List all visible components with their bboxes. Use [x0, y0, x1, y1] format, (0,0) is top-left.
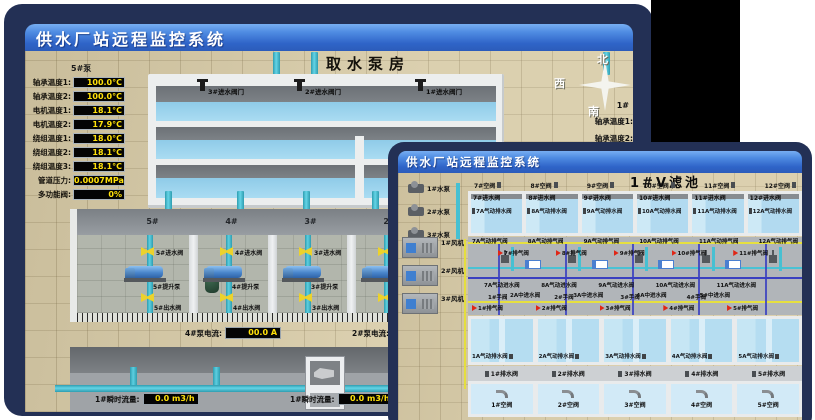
pipe-elbow-icon: [762, 390, 774, 398]
tank-divider: [355, 136, 364, 200]
air-release-valve-label[interactable]: 5#排气阀: [727, 304, 758, 312]
front-window-titlebar[interactable]: 供水厂站远程监控系统: [398, 151, 802, 173]
drain-valve[interactable]: 5#排水阀: [735, 366, 802, 381]
column: [189, 235, 198, 313]
valve-icon: [200, 79, 205, 91]
valve-deck: 7A气动排气阀8A气动排气阀9A气动排气阀10A气动排气阀11A气动排气阀12A…: [468, 237, 802, 315]
inlet-valve-label: 9A气动进水阀: [598, 281, 634, 289]
readout-label: 4#泵电流:: [185, 328, 222, 339]
blower-label: 1#风机: [441, 237, 464, 247]
blower-icon: [402, 265, 438, 286]
filter-pool-scene: 1#V滤池 1#水泵 2#水泵 3#水泵: [398, 173, 802, 420]
filter-cell[interactable]: 4A气动排水阀: [671, 319, 733, 362]
readout-value: 18.1°C: [73, 147, 125, 158]
pump-label: 3#提升泵: [311, 282, 338, 291]
pump1-header: 1#: [577, 101, 633, 110]
blower-label: 3#风机: [441, 293, 464, 303]
pipe: [213, 367, 220, 387]
air-valve[interactable]: 7#空阀: [474, 179, 501, 191]
exhaust-valve-label: 10A气动排气阀: [639, 237, 678, 245]
collection-channel: 5#空阀: [737, 384, 799, 414]
blower-label: 2#风机: [441, 265, 464, 275]
inlet-valve-label: 7A气动进水阀: [484, 281, 520, 289]
filter-cell[interactable]: 3A气动排水阀: [604, 319, 666, 362]
outlet-valve-label: 5#出水阀: [154, 303, 181, 312]
tank-icon: [592, 260, 608, 269]
valve-icon: [297, 79, 302, 91]
air-valve-label: 1#空阀: [491, 400, 512, 409]
outlet-valve-label: 4#出水阀: [233, 303, 260, 312]
readout-label: 管道压力:: [25, 175, 71, 186]
blower[interactable]: 1#风机: [402, 237, 464, 258]
readout-label: 电机温度2:: [25, 119, 71, 130]
drain-valve-label: 5A气动排水阀: [738, 352, 779, 360]
pump-bay: 4#进水阀 4#提升泵 4#出水阀: [198, 235, 264, 313]
readout-row: 多功能阀: 0%: [25, 189, 127, 200]
valve-label: 2#进水阀门: [305, 86, 341, 96]
pump-label: 2#水泵: [427, 206, 450, 216]
drain-valve-label: 3A气动排水阀: [605, 352, 646, 360]
readout-label: 绕组温度2:: [25, 147, 71, 158]
inlet-valve-label: 5#进水阀: [156, 248, 183, 257]
collection-channel: 3#空阀: [604, 384, 666, 414]
inlet-valve-label: 10A气动进水阀: [656, 281, 695, 289]
pipe-elbow-icon: [696, 390, 708, 398]
pump1-readout-panel: 1# 轴承温度1:轴承温度2:: [577, 101, 633, 144]
exhaust-valve-label: 9A气动排气阀: [584, 237, 620, 245]
air-valve[interactable]: 9#空阀: [587, 179, 614, 191]
flow-readout: 1#瞬时流量: 0.0 m3/h: [290, 393, 394, 405]
drain-valve-label: 9A气动排水阀: [583, 207, 623, 215]
hand-valve-label: 2#手阀: [554, 293, 573, 301]
intake-valve[interactable]: 3#进水阀门: [200, 79, 244, 96]
readout-label: 轴承温度1:: [577, 116, 633, 127]
readout-value: 0%: [73, 189, 125, 200]
air-valve-label: 3#空阀: [624, 400, 645, 409]
valve-label: 3#进水阀门: [208, 86, 244, 96]
filter-cell[interactable]: 10#进水阀 10A气动排水阀: [637, 194, 688, 233]
air-pipe: [464, 239, 466, 389]
readout-value: 18.1°C: [73, 105, 125, 116]
tank-wall: [156, 127, 496, 140]
intake-valve[interactable]: 1#进水阀门: [418, 79, 462, 96]
air-valve-label: 4#空阀: [691, 400, 712, 409]
bay-number: 3#: [271, 209, 350, 235]
air-valve[interactable]: 12#空阀: [765, 179, 796, 191]
blower-icon: [402, 237, 438, 258]
air-release-valve-label[interactable]: 4#排气阀: [663, 304, 694, 312]
collection-channel: 4#空阀: [671, 384, 733, 414]
blower[interactable]: 2#风机: [402, 265, 464, 286]
hand-valve-label: 4#手阀: [687, 293, 706, 301]
pipe: [468, 267, 802, 269]
pump-icon[interactable]: [285, 266, 321, 278]
readout-row: 管道压力: 0.0007MPa: [25, 175, 127, 186]
column: [347, 235, 356, 313]
filter-cell[interactable]: 12#进水阀 12A气动排水阀: [748, 194, 799, 233]
readout-row: 绕组温度1: 18.0°C: [25, 133, 127, 144]
readout-value: 17.9°C: [73, 119, 125, 130]
drain-valve-label: 4A气动排水阀: [672, 352, 713, 360]
valve-icon: [418, 79, 423, 91]
exhaust-valve-label: 12A气动排气阀: [759, 237, 798, 245]
readout-value: 18.0°C: [73, 133, 125, 144]
bay-number: 4#: [192, 209, 271, 235]
hand-valve-label: 3#手阀: [620, 293, 639, 301]
filter-cell[interactable]: 1A气动排水阀: [471, 319, 533, 362]
air-release-valve-label[interactable]: 10#排气阀: [672, 249, 707, 257]
collection-channel: 1#空阀: [471, 384, 533, 414]
readout-row: 轴承温度1: 100.0°C: [25, 77, 127, 88]
front-window-title: 供水厂站远程监控系统: [398, 154, 541, 170]
valve-label: 1#进水阀门: [426, 86, 462, 96]
inlet-valve-label: 3#进水阀: [314, 248, 341, 257]
pump-icon: [408, 207, 424, 216]
inlet-valve-label: 12#进水阀: [750, 194, 781, 202]
readout-value: 100.0°C: [73, 91, 125, 102]
air-valve[interactable]: 11#空阀: [704, 179, 735, 191]
drain-valve[interactable]: 4#排水阀: [668, 366, 735, 381]
water-pump[interactable]: 2#水泵: [408, 206, 450, 216]
air-valve-label: 2#空阀: [558, 400, 579, 409]
readout-label: 1#瞬时流量:: [290, 394, 335, 405]
drain-valve-label: 12A气动排水阀: [749, 207, 792, 215]
air-release-valve-label[interactable]: 1#排气阀: [472, 304, 503, 312]
air-valve[interactable]: 10#空阀: [643, 179, 674, 191]
inlet-valve-label: 8#进水阀: [528, 194, 555, 202]
inlet-valve-label: 8A气动进水阀: [541, 281, 577, 289]
pipe: [456, 183, 460, 239]
filter-grid: 7#空阀8#空阀9#空阀10#空阀11#空阀12#空阀 7#进水阀 7A气动排水…: [468, 179, 802, 420]
pump5-readout-panel: 5#泵 轴承温度1: 100.0°C 轴承温度2: 100.0°C: [25, 63, 127, 200]
background-panel: [651, 0, 740, 143]
valve-photo: [310, 361, 340, 385]
pipe: [130, 367, 137, 387]
pump-current-readout: 4#泵电流: 00.0 A: [185, 327, 281, 339]
pump-bay: 5#进水阀 5#提升泵 5#出水阀: [119, 235, 185, 313]
inlet-valve-label: 11#进水阀: [694, 194, 725, 202]
tank-wall: 3#进水阀门 2#进水阀门 1#进水阀门: [156, 86, 496, 102]
exhaust-valve-label: 7A气动排气阀: [472, 237, 508, 245]
readout-value: 0.0007MPa: [73, 175, 125, 186]
readout-value: 0.0 m3/h: [143, 393, 199, 405]
back-window-title: 供水厂站远程监控系统: [25, 26, 226, 50]
readout-label: 轴承温度2:: [25, 91, 71, 102]
tank-icon: [525, 260, 541, 269]
pump-icon[interactable]: [127, 266, 163, 278]
inlet-valve-label: 11A气动进水阀: [717, 281, 756, 289]
readout-label: 1#瞬时流量:: [95, 394, 140, 405]
readout-label: 轴承温度1:: [25, 77, 71, 88]
air-release-valve-label[interactable]: 9#排气阀: [614, 249, 645, 257]
hand-valve-label: 1#手阀: [488, 293, 507, 301]
pipe: [311, 52, 318, 75]
drain-valve-label: 11A气动排水阀: [693, 207, 736, 215]
air-release-valve-label[interactable]: 3#排气阀: [600, 304, 631, 312]
air-release-valve-label[interactable]: 11#排气阀: [733, 249, 768, 257]
inlet-valve-label: 9#进水阀: [584, 194, 611, 202]
pump-icon[interactable]: [206, 266, 242, 278]
readout-value: 00.0 A: [225, 327, 281, 339]
exhaust-valve-label: 8A气动排气阀: [528, 237, 564, 245]
pipe: [273, 52, 280, 75]
readout-row: 电机温度2: 17.9°C: [25, 119, 127, 130]
air-release-valve-label[interactable]: 7#排气阀: [498, 249, 529, 257]
filter-cell[interactable]: 9#进水阀 9A气动排水阀: [582, 194, 633, 233]
pipe-elbow-icon: [562, 390, 574, 398]
pump-label: 5#提升泵: [153, 282, 180, 291]
pipe-elbow-icon: [496, 390, 508, 398]
blower[interactable]: 3#风机: [402, 293, 464, 314]
readout-value: 100.0°C: [73, 77, 125, 88]
flow-readout: 1#瞬时流量: 0.0 m3/h: [95, 393, 199, 405]
readout-label: 绕组温度3:: [25, 161, 71, 172]
pipe: [468, 277, 802, 279]
drain-valve-label: 8A气动排水阀: [527, 207, 567, 215]
pump-label: 4#提升泵: [232, 282, 259, 291]
tank-icon: [658, 260, 674, 269]
drain-valve-label: 10A气动排水阀: [638, 207, 681, 215]
drain-valve[interactable]: 2#排水阀: [535, 366, 602, 381]
filter-cell[interactable]: 7#进水阀 7A气动排水阀: [471, 194, 522, 233]
air-pipe: [468, 301, 802, 303]
bay-number: 5#: [113, 209, 192, 235]
air-release-valve-label[interactable]: 2#排气阀: [536, 304, 567, 312]
drain-valve[interactable]: 3#排水阀: [602, 366, 669, 381]
tank-icon: [725, 260, 741, 269]
readout-label: 绕组温度1:: [25, 133, 71, 144]
compass-north-label: 北: [597, 51, 608, 67]
drain-valve[interactable]: 1#排水阀: [468, 366, 535, 381]
scene-heading: 取水泵房: [326, 53, 410, 74]
compass-west-label: 西: [554, 75, 565, 91]
water-channel: [156, 102, 496, 121]
readout-label: 多功能阀:: [25, 189, 71, 200]
readout-label: 电机温度1:: [25, 105, 71, 116]
drain-valve-label: 7A气动排水阀: [472, 207, 512, 215]
filter-cell[interactable]: 2A气动排水阀: [538, 319, 600, 362]
filter-cell[interactable]: 5A气动排水阀: [737, 319, 799, 362]
air-release-valve-label[interactable]: 8#排气阀: [556, 249, 587, 257]
drain-valve-label: 1A气动排水阀: [472, 352, 513, 360]
intake-valve[interactable]: 2#进水阀门: [297, 79, 341, 96]
pump5-header: 5#泵: [71, 63, 127, 74]
drain-valve-label: 2A气动排水阀: [539, 352, 580, 360]
collection-channel: 2#空阀: [538, 384, 600, 414]
inlet-valve-label: 7#进水阀: [473, 194, 500, 202]
inlet-valve-label: 10#进水阀: [639, 194, 670, 202]
back-window-titlebar[interactable]: 供水厂站远程监控系统: [25, 24, 633, 51]
readout-row: 电机温度1: 18.1°C: [25, 105, 127, 116]
readout-label: 2#泵电流:: [352, 328, 389, 339]
pipe-elbow-icon: [629, 390, 641, 398]
desktop: 供水厂站远程监控系统 取水泵房 5#泵 轴承温度1: 100.0°C 轴承温度2…: [0, 0, 815, 420]
air-valve[interactable]: 8#空阀: [530, 179, 557, 191]
readout-value: 0.0 m3/h: [338, 393, 394, 405]
outlet-valve-label: 3#出水阀: [312, 303, 339, 312]
pump-bay: 3#进水阀 3#提升泵 3#出水阀: [277, 235, 343, 313]
readout-value: 18.1°C: [73, 161, 125, 172]
readout-row: 轴承温度2: 100.0°C: [25, 91, 127, 102]
exhaust-valve-label: 11A气动排气阀: [699, 237, 738, 245]
inlet-valve-label: 4#进水阀: [235, 248, 262, 257]
filter-cell[interactable]: 8#进水阀 8A气动排水阀: [526, 194, 577, 233]
pump-icon: [408, 184, 424, 193]
readout-row: 绕组温度3: 18.1°C: [25, 161, 127, 172]
column: [268, 235, 277, 313]
blower-icon: [402, 293, 438, 314]
window-filter-pool: 供水厂站远程监控系统 1#V滤池 1#水泵 2#水泵: [388, 142, 812, 420]
water-pump[interactable]: 1#水泵: [408, 183, 450, 193]
readout-row: 绕组温度2: 18.1°C: [25, 147, 127, 158]
pump-label: 1#水泵: [427, 183, 450, 193]
air-valve-label: 5#空阀: [758, 400, 779, 409]
filter-cell[interactable]: 11#进水阀 11A气动排水阀: [692, 194, 743, 233]
